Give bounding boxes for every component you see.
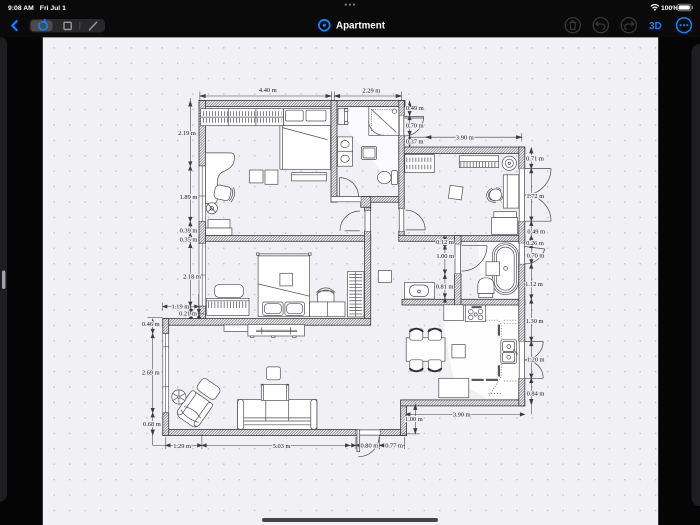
svg-text:0.37 m: 0.37 m xyxy=(406,138,424,145)
svg-text:0.84 m: 0.84 m xyxy=(527,390,545,397)
svg-text:0.71 m: 0.71 m xyxy=(526,156,544,163)
svg-text:0.68 m: 0.68 m xyxy=(143,421,161,428)
svg-text:0.49 m: 0.49 m xyxy=(406,105,424,112)
svg-text:2.29 m: 2.29 m xyxy=(363,87,381,94)
svg-text:2.69 m: 2.69 m xyxy=(142,370,160,377)
svg-text:1.30 m: 1.30 m xyxy=(526,318,544,325)
svg-text:2.19 m: 2.19 m xyxy=(178,130,196,137)
svg-text:1.00 m: 1.00 m xyxy=(405,416,423,423)
svg-text:2.18 m: 2.18 m xyxy=(183,274,201,281)
svg-text:0.81 m: 0.81 m xyxy=(436,284,454,291)
svg-text:0.12 m: 0.12 m xyxy=(436,239,454,246)
svg-text:1.89 m: 1.89 m xyxy=(180,194,198,201)
svg-text:0.77 m: 0.77 m xyxy=(385,443,403,450)
svg-text:0.46 m: 0.46 m xyxy=(142,321,160,328)
svg-text:5.03 m: 5.03 m xyxy=(273,443,291,450)
svg-text:0.26 m: 0.26 m xyxy=(526,240,544,247)
svg-text:3D: 3D xyxy=(649,21,662,32)
svg-text:4.40 m: 4.40 m xyxy=(259,87,277,94)
svg-text:0.70 m: 0.70 m xyxy=(527,253,545,260)
svg-text:3.90 m: 3.90 m xyxy=(453,412,471,419)
svg-text:1.19 m: 1.19 m xyxy=(172,304,190,311)
svg-text:Fri Jul 1: Fri Jul 1 xyxy=(40,5,66,12)
svg-text:1.72 m: 1.72 m xyxy=(526,193,544,200)
svg-text:1.29 m: 1.29 m xyxy=(173,443,191,450)
svg-text:0.21 m: 0.21 m xyxy=(179,311,197,318)
svg-text:1.12 m: 1.12 m xyxy=(525,281,543,288)
svg-text:1.20 m: 1.20 m xyxy=(527,356,545,363)
svg-text:0.80 m: 0.80 m xyxy=(361,443,379,450)
svg-text:9:08 AM: 9:08 AM xyxy=(8,5,34,12)
svg-text:0.39 m: 0.39 m xyxy=(180,228,198,235)
svg-text:Apartment: Apartment xyxy=(336,21,386,32)
svg-text:0.35 m: 0.35 m xyxy=(180,237,198,244)
svg-text:3.90 m: 3.90 m xyxy=(456,135,474,142)
svg-text:1.00 m: 1.00 m xyxy=(436,253,454,260)
svg-text:100%: 100% xyxy=(661,5,678,12)
svg-text:0.49 m: 0.49 m xyxy=(527,228,545,235)
svg-text:0.70 m: 0.70 m xyxy=(406,122,424,129)
